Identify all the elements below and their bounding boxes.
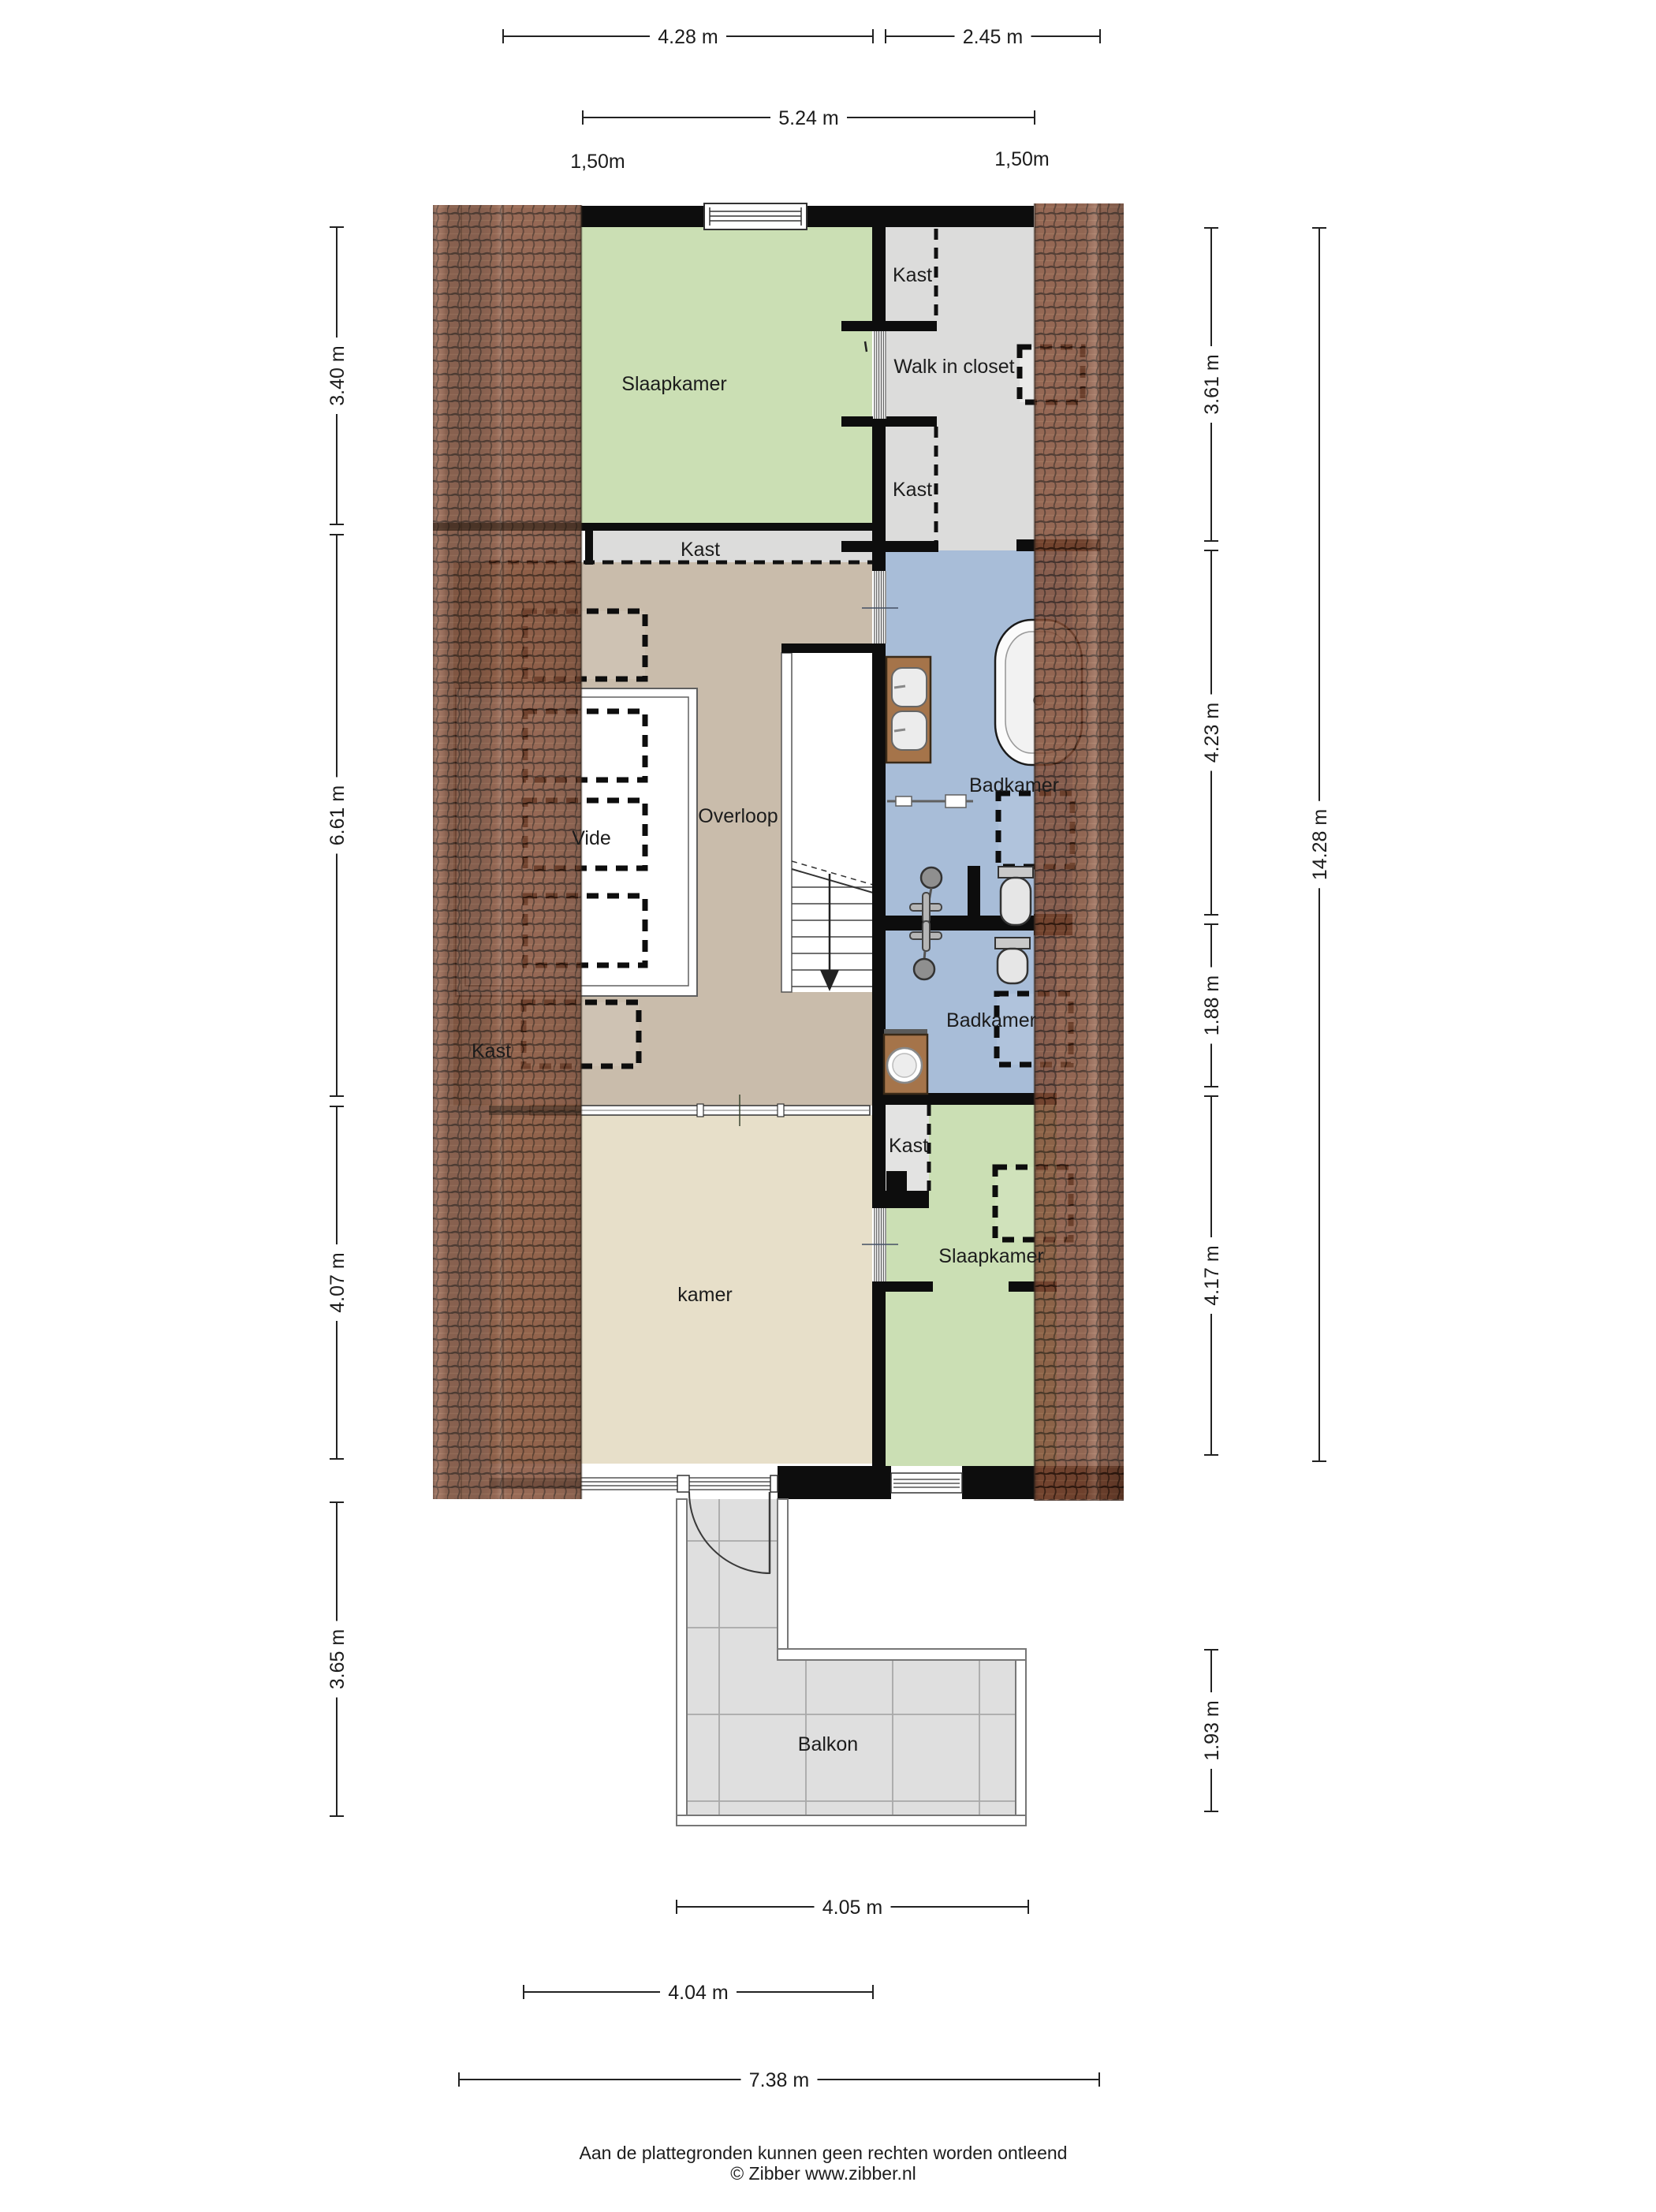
svg-text:14.28 m: 14.28 m <box>1309 809 1331 880</box>
svg-text:Aan de plattegronden kunnen ge: Aan de plattegronden kunnen geen rechten… <box>580 2143 1068 2163</box>
svg-text:Kast: Kast <box>681 539 720 561</box>
svg-text:1.93 m: 1.93 m <box>1201 1700 1223 1760</box>
svg-text:Vide: Vide <box>572 827 611 849</box>
svg-text:4.17 m: 4.17 m <box>1201 1245 1223 1305</box>
svg-text:Slaapkamer: Slaapkamer <box>938 1245 1043 1267</box>
svg-text:kamer: kamer <box>677 1284 732 1306</box>
svg-text:3.65 m: 3.65 m <box>326 1629 349 1689</box>
svg-text:4.04 m: 4.04 m <box>668 1982 728 2004</box>
svg-text:4.28 m: 4.28 m <box>658 26 718 48</box>
svg-text:4.05 m: 4.05 m <box>822 1897 882 1919</box>
svg-text:Slaapkamer: Slaapkamer <box>621 373 726 395</box>
svg-text:1,50m: 1,50m <box>994 148 1049 170</box>
svg-text:3.40 m: 3.40 m <box>326 345 349 405</box>
svg-text:Overloop: Overloop <box>698 805 778 827</box>
svg-text:7.38 m: 7.38 m <box>749 2069 809 2091</box>
svg-text:2.45 m: 2.45 m <box>963 26 1023 48</box>
svg-text:Badkamer: Badkamer <box>969 774 1059 796</box>
svg-text:4.07 m: 4.07 m <box>326 1252 349 1312</box>
svg-text:5.24 m: 5.24 m <box>778 107 838 129</box>
svg-text:© Zibber www.zibber.nl: © Zibber www.zibber.nl <box>730 2163 916 2184</box>
svg-text:Kast: Kast <box>893 479 932 501</box>
svg-text:Walk in closet: Walk in closet <box>893 356 1014 378</box>
svg-text:1,50m: 1,50m <box>570 151 625 173</box>
svg-text:Kast: Kast <box>472 1040 511 1062</box>
svg-text:Kast: Kast <box>893 264 932 286</box>
svg-text:6.61 m: 6.61 m <box>326 785 349 845</box>
svg-text:4.23 m: 4.23 m <box>1201 703 1223 763</box>
svg-text:Badkamer: Badkamer <box>946 1009 1036 1031</box>
svg-text:Balkon: Balkon <box>798 1733 858 1755</box>
svg-text:Kast: Kast <box>889 1135 928 1157</box>
svg-text:3.61 m: 3.61 m <box>1201 354 1223 414</box>
svg-text:1.88 m: 1.88 m <box>1201 975 1223 1035</box>
